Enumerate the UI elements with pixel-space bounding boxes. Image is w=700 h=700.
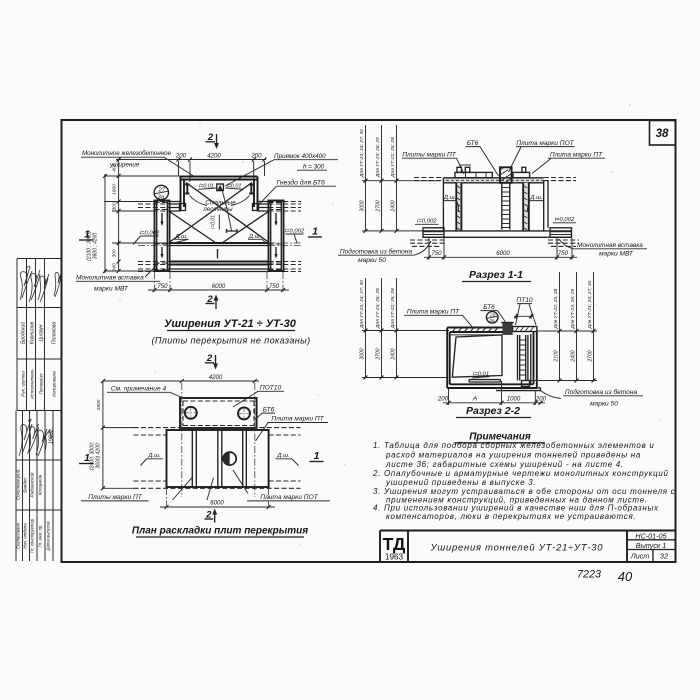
svg-text:Проверил: Проверил: [39, 373, 44, 394]
svg-text:i=0,002: i=0,002: [285, 228, 305, 234]
svg-text:2700: 2700: [376, 200, 382, 212]
svg-text:Подготовка из бетона: Подготовка из бетона: [340, 248, 413, 256]
svg-text:Плиты марки ПТ: Плиты марки ПТ: [402, 152, 457, 159]
svg-text:Уширения УТ-21 ÷ УТ-30: Уширения УТ-21 ÷ УТ-30: [164, 318, 297, 330]
svg-text:200: 200: [535, 395, 547, 402]
svg-text:2100: 2100: [554, 350, 560, 362]
svg-text:2700: 2700: [588, 350, 594, 362]
svg-text:750: 750: [558, 250, 569, 257]
svg-text:Исполнитель: Исполнитель: [30, 369, 35, 399]
svg-text:750: 750: [269, 283, 280, 290]
svg-text:Д.ш.: Д.ш.: [276, 453, 289, 459]
svg-text:i=0,01: i=0,01: [211, 215, 217, 229]
svg-text:7223: 7223: [577, 569, 601, 581]
svg-text:2400: 2400: [391, 348, 397, 360]
svg-text:1: 1: [314, 450, 320, 462]
svg-text:38: 38: [656, 128, 669, 140]
svg-text:1800: 1800: [96, 399, 102, 410]
svg-text:1: 1: [312, 226, 318, 238]
svg-text:Гл. конструктор: Гл. конструктор: [30, 518, 35, 553]
svg-text:План раскладки плит перекры: План раскладки плит перекрытия: [132, 526, 308, 537]
svg-text:Копировала: Копировала: [52, 371, 57, 397]
svg-text:уширений приведены в выпуск: уширений приведены в выпуске 3.: [385, 478, 536, 487]
svg-text:i=0,002: i=0,002: [417, 219, 437, 225]
svg-text:БТ6: БТ6: [467, 140, 479, 147]
svg-text:1800: 1800: [112, 184, 118, 195]
svg-text:40: 40: [618, 569, 633, 584]
svg-text:Плита марки ПОТ: Плита марки ПОТ: [516, 140, 574, 147]
svg-text:См. примечание 4: См. примечание 4: [111, 386, 167, 393]
svg-text:Радзинский: Радзинский: [29, 472, 35, 497]
svg-text:Бандос: Бандос: [23, 477, 28, 493]
svg-text:Ципрун: Ципрун: [39, 324, 45, 341]
svg-text:компенсаторов, люки в перек: компенсаторов, люки в перекрытиях не уст…: [386, 512, 636, 521]
svg-text:6000: 6000: [496, 250, 510, 257]
svg-text:Нач. отдела: Нач. отдела: [23, 523, 28, 549]
svg-text:Лист: Лист: [630, 552, 650, 561]
svg-text:200: 200: [250, 153, 262, 160]
svg-text:2700: 2700: [376, 348, 382, 360]
svg-text:Приямок 400х400: Приямок 400х400: [274, 153, 326, 160]
svg-text:2400: 2400: [391, 200, 397, 212]
svg-text:i=0,002: i=0,002: [555, 217, 575, 223]
svg-text:ТД: ТД: [383, 534, 406, 554]
svg-text:1. Таблица для подбора сбор: 1. Таблица для подбора сборных железобет…: [373, 441, 655, 450]
svg-text:расход материалов на уширен: расход материалов на уширения тоннелей п…: [385, 451, 641, 460]
svg-text:400: 400: [112, 163, 118, 171]
svg-text:3000: 3000: [360, 200, 366, 211]
svg-text:2. Опалубочные и арматурные: 2. Опалубочные и арматурные чертежи моно…: [372, 469, 669, 478]
svg-text:Плита марки ПОТ: Плита марки ПОТ: [260, 494, 318, 501]
svg-text:3600) 4200: 3600) 4200: [96, 443, 102, 469]
svg-text:1: 1: [84, 229, 90, 241]
svg-text:ПТ10: ПТ10: [516, 297, 532, 304]
svg-text:Гнездо для БТ6: Гнездо для БТ6: [277, 179, 326, 187]
svg-text:3600 ; 4200: 3600 ; 4200: [93, 233, 99, 260]
svg-text:Разрез 1-1: Разрез 1-1: [469, 269, 523, 281]
svg-text:Для УТ-23; 26; 29: Для УТ-23; 26; 29: [375, 288, 381, 329]
svg-text:20: 20: [489, 313, 496, 319]
svg-text:Монолитная вставка: Монолитная вставка: [577, 242, 643, 249]
svg-text:4200: 4200: [209, 374, 223, 381]
svg-text:Д.ш.: Д.ш.: [147, 453, 160, 459]
svg-text:(Плиты перекрытия не показа: (Плиты перекрытия не показаны): [151, 336, 310, 346]
svg-text:марки 50: марки 50: [358, 257, 386, 264]
svg-text:марки МВТ: марки МВТ: [94, 286, 129, 293]
svg-text:750: 750: [431, 250, 442, 257]
svg-text:Для УТ-22; 25; 28: Для УТ-22; 25; 28: [390, 288, 396, 329]
svg-text:марки МВТ: марки МВТ: [599, 251, 634, 258]
svg-text:БТ6: БТ6: [263, 407, 275, 414]
svg-text:Для УТ-22; 25; 28: Для УТ-22; 25; 28: [390, 137, 396, 178]
svg-text:Для УТ-23; 26; 29: Для УТ-23; 26; 29: [375, 137, 381, 178]
svg-text:Соколовицкий: Соколовицкий: [15, 469, 21, 500]
svg-text:Подготовка из бетона: Подготовка из бетона: [565, 388, 638, 396]
svg-text:h = 300: h = 300: [303, 164, 325, 171]
svg-text:Рук. группы: Рук. группы: [21, 371, 26, 397]
svg-text:300: 300: [112, 202, 118, 210]
svg-text:БТ6: БТ6: [483, 304, 495, 311]
svg-text:Монолитная вставка: Монолитная вставка: [76, 275, 144, 282]
svg-text:240: 240: [112, 263, 118, 272]
svg-text:Корнилов: Корнилов: [30, 321, 36, 344]
svg-text:3а: 3а: [158, 194, 165, 200]
svg-text:Выпуск 1: Выпуск 1: [636, 541, 667, 550]
svg-text:27: 27: [158, 188, 166, 194]
svg-text:А: А: [472, 395, 478, 402]
svg-text:Для УТ-21; 24; 27; 30: Для УТ-21; 24; 27; 30: [359, 129, 365, 178]
svg-text:Гл. инж. пр.: Гл. инж. пр.: [38, 524, 43, 547]
svg-text:Копцеейн: Копцеейн: [37, 474, 43, 495]
svg-text:Для УТ-23; 26; 29: Для УТ-23; 26; 29: [570, 289, 576, 330]
svg-text:4200: 4200: [207, 153, 221, 160]
svg-text:3а: 3а: [489, 318, 495, 324]
svg-text:Монолитное железобетонное: Монолитное железобетонное: [82, 150, 172, 157]
svg-text:1000: 1000: [507, 395, 521, 402]
svg-text:2400: 2400: [571, 350, 577, 362]
svg-text:Д.ш.: Д.ш.: [529, 195, 542, 201]
svg-text:6000: 6000: [210, 500, 224, 507]
svg-text:300: 300: [112, 249, 118, 257]
svg-text:Плита марки ПТ: Плита марки ПТ: [550, 152, 603, 159]
svg-text:ПОТ10: ПОТ10: [260, 385, 282, 392]
svg-text:Согласовано: Согласовано: [16, 522, 21, 549]
svg-text:i=0,002: i=0,002: [140, 230, 160, 236]
svg-text:Для УТ-21; 24; 27; 30: Для УТ-21; 24; 27; 30: [359, 280, 365, 329]
svg-text:Плита марки ПТ: Плита марки ПТ: [407, 309, 460, 316]
svg-text:Для УТ-21; 24; 27; 30: Для УТ-21; 24; 27; 30: [587, 280, 593, 329]
svg-text:Бродский: Бродский: [20, 322, 27, 344]
svg-text:Плиты марки ПТ: Плиты марки ПТ: [88, 494, 143, 501]
svg-text:Д.ш.: Д.ш.: [443, 195, 456, 201]
svg-text:Плита марки ПТ: Плита марки ПТ: [271, 416, 324, 423]
svg-text:марки 50: марки 50: [590, 401, 618, 408]
svg-text:Для УТ-22; 25; 28: Для УТ-22; 25; 28: [553, 289, 559, 330]
svg-text:1963г.: 1963г.: [49, 428, 55, 444]
svg-text:Полякова: Полякова: [52, 322, 58, 344]
svg-text:Дата выпуска: Дата выпуска: [46, 521, 51, 552]
svg-text:32: 32: [660, 552, 669, 561]
svg-text:200: 200: [175, 153, 187, 160]
svg-text:Разрез 2-2: Разрез 2-2: [466, 405, 520, 417]
svg-text:НС-01-05: НС-01-05: [635, 531, 667, 540]
svg-text:6000: 6000: [212, 283, 226, 290]
svg-text:1963: 1963: [385, 553, 404, 562]
svg-text:Уширения тоннелей УТ-21÷УТ-3: Уширения тоннелей УТ-21÷УТ-30: [430, 542, 604, 553]
svg-text:3000: 3000: [360, 348, 366, 359]
svg-text:листе 36; габаритные схемы: листе 36; габаритные схемы уширений - на…: [385, 460, 624, 469]
svg-text:200: 200: [437, 395, 449, 402]
svg-text:750: 750: [157, 283, 168, 290]
